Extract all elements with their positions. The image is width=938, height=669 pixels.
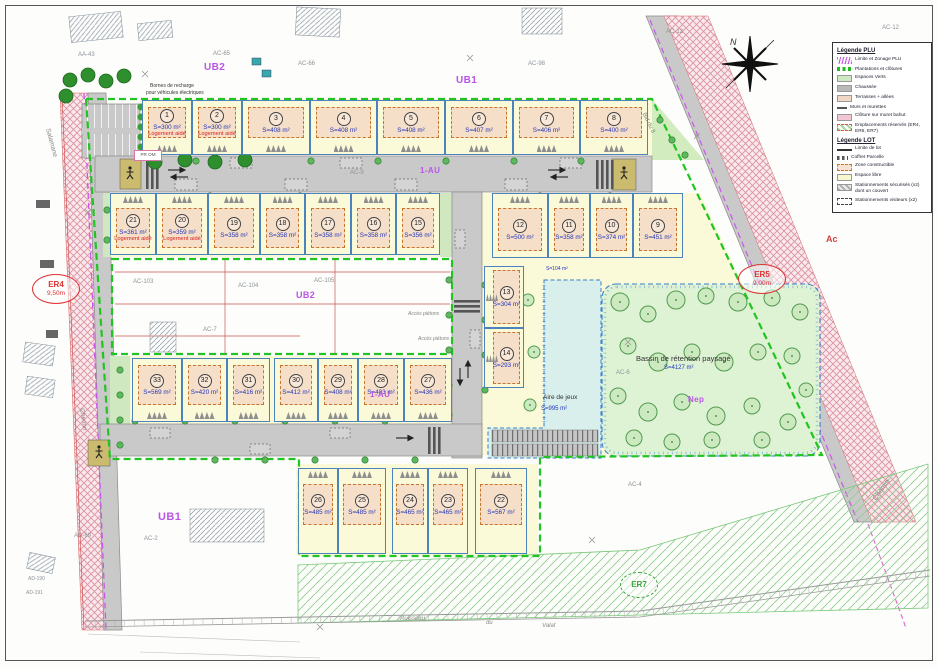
legend-item: Zone constructible [837,163,927,171]
legend-item-label: Emplacements réservés (ER4, ER5, ER7) [855,123,927,135]
zone-label-ub1-top: UB1 [456,76,477,86]
street-label-du: du [486,620,493,626]
waste-collection-point: PR OM [134,150,162,161]
legend-swatch-coffret [837,156,848,160]
legend-swatch-peach [837,95,852,102]
zone-label-ub2-mid: UB2 [296,291,315,300]
charging-station-label: Bornes de recharge [150,84,194,89]
parcel-label-ac98: AC-98 [528,61,545,67]
parcel-label-ac12: AC-12 [666,29,683,35]
zone-label-1au-south: 1-AU [370,391,390,399]
parcel-label-ac6: AC-6 [616,370,630,376]
legend-item-label: Terrasses + allées [855,95,894,101]
legend-section-title: Légende PLU [837,48,927,54]
er5-label: ER5 [754,271,770,280]
parcel-label-ad69: AD-69 [74,533,91,539]
legend-section-title: Légende LOT [837,138,927,144]
er4-label: ER4 [48,281,64,290]
parcel-label-ac2: AC-2 [144,536,158,542]
parcel-label-aa43: AA-43 [78,52,95,58]
legend-swatch-pink [837,114,852,121]
zone-label-ub2-top: UB2 [204,63,225,73]
charging-station-label: pour véhicules électriques [146,91,204,96]
parcel-label-ac4: AC-4 [628,482,642,488]
legend-swatch-wall [837,107,847,110]
er5-badge: ER5 9,00m [738,264,786,294]
parcel-label-ac104: AC-104 [238,283,258,289]
street-label-boulevard: Bld du 8 [641,112,656,134]
legend-item-label: Coffret Parcelle [851,155,884,161]
er4-badge: ER4 9,50m [32,274,80,304]
legend-swatch-er [837,124,852,131]
street-label-salamane: Salamane [44,128,58,158]
legend-swatch-zigzag [837,57,852,64]
legend-item: Limite de lot [837,146,927,152]
legend-item: Limite et Zonage PLU [837,57,927,65]
legend-item-label: Chaussée [855,85,877,91]
zone-label-ac: Ac [826,235,838,244]
pedestrian-access-label: Accès piétons [418,337,449,342]
legend-item-label: Stationnements visiteurs (x2) [855,198,917,204]
parcel-label-ac103: AC-103 [133,279,153,285]
legend-swatch-zc [837,164,852,171]
legend-item: Stationnements visiteurs (x2) [837,198,927,206]
legend-item-label: Limite et Zonage PLU [855,57,901,63]
legend-item-label: Plantations et clôtures [855,67,902,73]
legend-swatch-libre [837,174,852,181]
legend-item: Terrasses + allées [837,95,927,103]
zone-label-ub1-bottom: UB1 [158,512,181,523]
street-label-ruisseau: Ruisseau [400,616,425,622]
parcel-label-ac9: AC-9 [350,170,364,176]
legend-item-label: Zone constructible [855,163,894,169]
legend-item-label: Murs et murettes [850,105,886,111]
parcel-label-ac105: AC-105 [314,278,334,284]
er5-dimension: 9,00m [753,280,771,287]
legend-swatch-green [837,75,852,82]
legend-item: Coffret Parcelle [837,155,927,161]
er4-dimension: 9,50m [47,290,65,297]
legend-swatch-park [837,184,852,191]
parcel-label-ac66: AC-66 [298,61,315,67]
playground-area-label: S=995 m² [541,406,567,412]
legend-item: Espaces Verts [837,75,927,83]
legend-item-label: Espace libre [855,173,881,179]
legend-item: Clôture sur muret bahut [837,113,927,121]
er7-badge: ER7 [620,572,658,598]
labels-layer: UB2UB1UB2UB11-AU1-AUNepAcAA-43AC-65AC-66… [0,0,938,669]
parcel-label-ac12: AC-12 [882,25,899,31]
legend-item-label: Stationnements sécurisés (x2) dont un co… [855,183,927,195]
parcel-label-ac65: AC-65 [213,51,230,57]
legend-swatch-gray [837,85,852,92]
legend-swatch-visit [837,198,852,205]
legend-item: Chaussée [837,85,927,93]
playground-name-label: Aire de jeux [543,395,577,402]
pedestrian-access-label: Accès piétons [408,312,439,317]
legend-item: Espace libre [837,173,927,181]
legend-item-label: Espaces Verts [855,75,886,81]
zone-label-nep: Nep [688,396,704,404]
legend-item: Emplacements réservés (ER4, ER5, ER7) [837,123,927,135]
basin-name-label: Bassin de rétention paysagé [636,355,731,363]
parcel-label-ac7: AC-7 [203,327,217,333]
legend-item-label: Clôture sur muret bahut [855,113,905,119]
legend-swatch-gdash [837,67,852,71]
north-letter: N [730,38,737,47]
parcel-label-ad190: AD-190 [28,577,45,582]
legend-item: Murs et murettes [837,105,927,111]
basin-area-label: S=4127 m² [664,365,694,371]
legend-swatch-line [837,149,852,151]
legend-item-label: Limite de lot [855,146,881,152]
street-label-chemin-west: Chemin [78,408,88,431]
legend-item: Plantations et clôtures [837,67,927,73]
er7-label: ER7 [631,581,647,590]
zone-label-1au-road: 1-AU [420,167,440,175]
strip-area-label: S=104 m² [546,267,568,272]
street-label-valat: Valat [542,623,556,629]
legend-item: Stationnements sécurisés (x2) dont un co… [837,183,927,195]
street-label-chemin-southeast: Chemin [872,478,892,502]
site-plan-page: 1S=300 m²Logement aidé2S=300 m²Logement … [0,0,938,669]
parcel-label-ad191: AD-191 [26,591,43,596]
legend-box: Légende PLULimite et Zonage PLUPlantatio… [832,42,932,213]
